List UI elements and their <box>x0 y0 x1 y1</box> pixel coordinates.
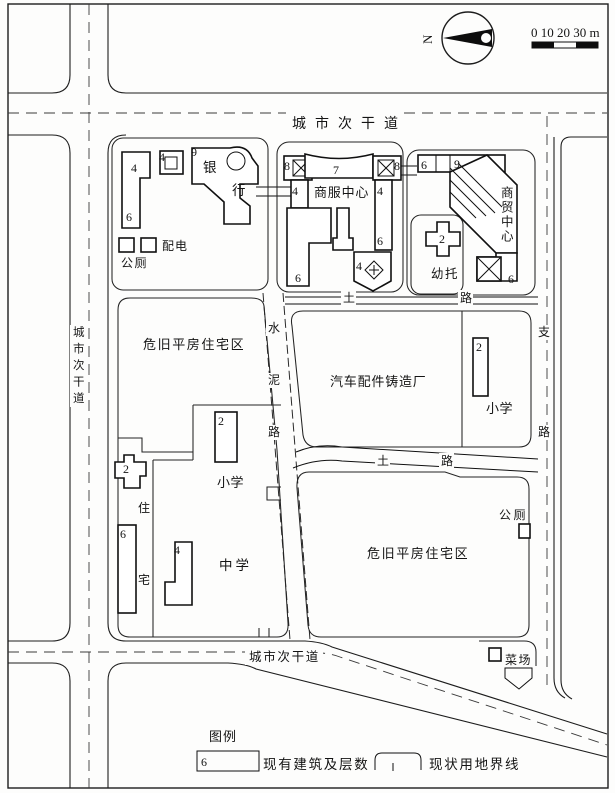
public-toilet-se-label: 公厕 <box>499 508 526 522</box>
floor-label: 9 <box>191 145 197 159</box>
floor-label: 4 <box>356 259 362 273</box>
floor-label: 6 <box>508 272 514 286</box>
floor-label: 4 <box>292 184 298 198</box>
east-block-west-edge <box>561 147 572 699</box>
bank-building <box>192 147 258 224</box>
floor-label: 7 <box>333 163 339 177</box>
market-pen-outline <box>505 668 532 689</box>
primary-school-east-label: 小学 <box>486 401 513 416</box>
floor-label: 2 <box>476 340 482 354</box>
cs-mid-stem <box>333 208 353 250</box>
scale-label: 0 10 20 30 m <box>531 25 600 40</box>
left-road-east-edge-south <box>108 663 126 788</box>
power-building-1 <box>119 238 134 252</box>
market-label: 菜场 <box>505 653 531 667</box>
cs-bar-building <box>305 154 373 178</box>
bottom-road-south-edge <box>126 663 607 757</box>
east-block-top-edge <box>561 137 607 147</box>
market-building <box>489 648 501 661</box>
floor-label: 4 <box>131 161 137 175</box>
floor-label: 2 <box>439 232 445 246</box>
legend-boundary-symbol <box>375 753 421 771</box>
walkway-bank-link <box>256 187 291 196</box>
site-plan-map: 城市次干道 城市次干道 城市次干道 支路 水泥路 土路 土路 银行 商服中心 商… <box>0 0 615 793</box>
left-road-west-edge <box>8 135 70 641</box>
middle-school-label: 中学 <box>219 558 249 573</box>
floor-label: 6 <box>295 271 301 285</box>
dirt-road-lower-label: 土路 <box>377 453 453 468</box>
nursery-label: 幼托 <box>431 267 458 281</box>
power-distribution-label: 配电 <box>162 239 187 253</box>
middle-school-gate <box>259 628 269 637</box>
legend-building-symbol: 6 <box>201 755 207 769</box>
trade-center-label: 商贸中心 <box>501 185 514 244</box>
floor-label: 6 <box>120 527 126 541</box>
old-housing-nw-south-edge <box>118 438 193 452</box>
floor-label: 6 <box>421 158 427 172</box>
legend: 图例 6 现有建筑及层数 现状用地界线 <box>197 729 519 772</box>
public-toilet-nw-label: 公厕 <box>121 256 147 270</box>
floor-label: 6 <box>377 234 383 248</box>
dirt-road-lower-north-edge <box>296 446 538 459</box>
legend-title: 图例 <box>209 729 236 744</box>
road-label-left: 城市次干道 <box>73 326 85 405</box>
road-label-bottom: 城市次干道 <box>249 649 319 664</box>
branch-road-east-edge <box>554 137 565 698</box>
floor-label: 4 <box>377 184 383 198</box>
primary-school-west-label: 小学 <box>217 475 244 490</box>
floor-label: 8 <box>394 159 400 173</box>
north-arrow-notch <box>481 33 491 43</box>
floor-label: 2 <box>218 414 224 428</box>
foundry-label: 汽车配件铸造厂 <box>330 374 426 389</box>
bottom-road-north-edge <box>126 641 607 734</box>
dirt-road-lower-south-edge <box>293 460 538 472</box>
branch-road-label: 支路 <box>538 325 550 439</box>
scale-segment-1 <box>532 42 554 48</box>
buildings <box>115 147 532 689</box>
floor-label: 4 <box>159 150 165 164</box>
floor-label: 2 <box>123 462 129 476</box>
north-label: N <box>420 34 435 44</box>
power-building-2 <box>141 238 156 252</box>
site-plan-page: 城市次干道 城市次干道 城市次干道 支路 水泥路 土路 土路 银行 商服中心 商… <box>0 0 615 793</box>
residence-small-building <box>115 455 146 488</box>
left-road-west-edge-south <box>8 663 70 788</box>
legend-building-floors-label: 现有建筑及层数 <box>263 757 368 772</box>
commerce-service-center-label: 商服中心 <box>314 185 368 200</box>
north-arrow: N <box>420 12 494 64</box>
floor-label: 4 <box>174 543 180 557</box>
old-housing-se-label: 危旧平房住宅区 <box>367 546 468 561</box>
scale-segment-3 <box>576 42 598 48</box>
toilet-se-building <box>519 524 530 538</box>
residence-label: 住宅 <box>138 501 150 587</box>
scale-bar: 0 10 20 30 m <box>531 25 600 48</box>
bottom-road-centerline <box>8 652 607 745</box>
legend-boundary-label: 现状用地界线 <box>429 757 519 772</box>
floor-label: 8 <box>284 159 290 173</box>
floor-label: 6 <box>126 210 132 224</box>
cs-building-left <box>287 208 331 286</box>
top-road-edge-nw <box>8 4 70 93</box>
floor-label: 9 <box>454 157 460 171</box>
old-housing-nw-label: 危旧平房住宅区 <box>143 337 244 352</box>
